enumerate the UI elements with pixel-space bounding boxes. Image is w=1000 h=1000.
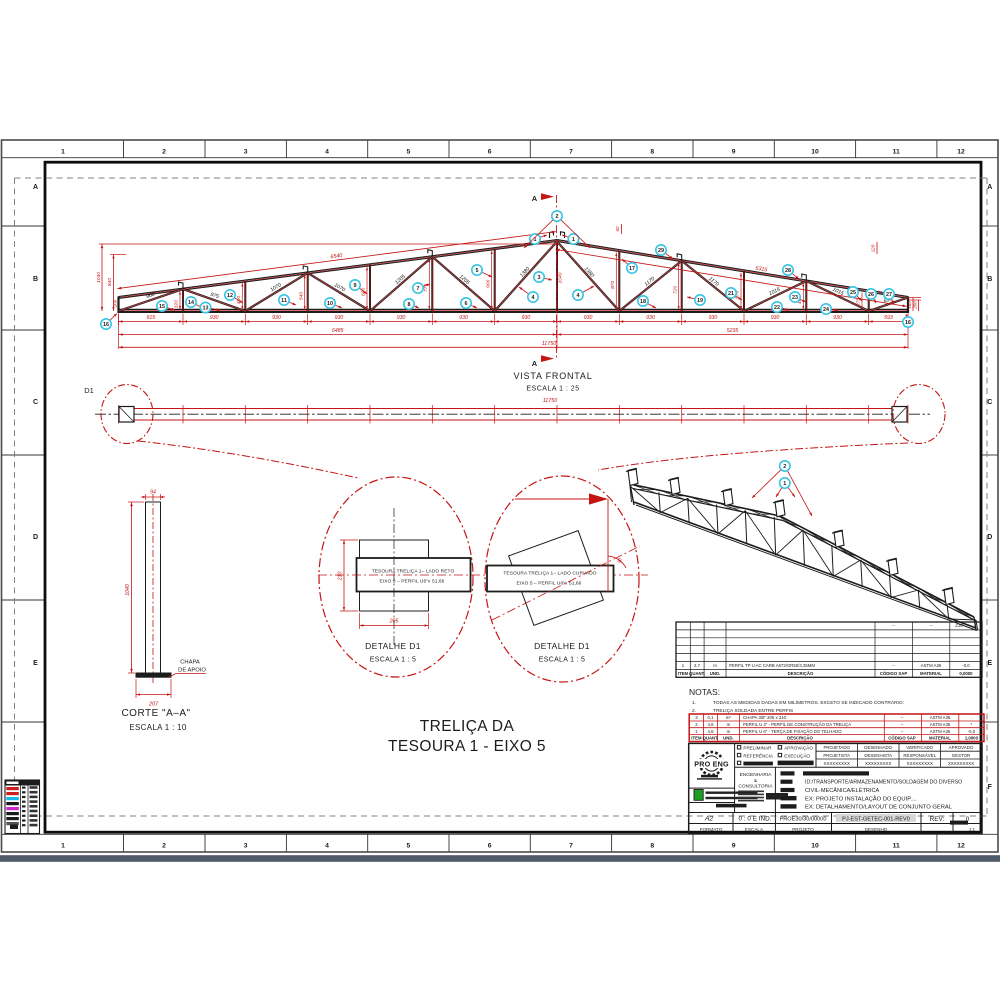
svg-text:24: 24 [823, 307, 829, 313]
svg-text:4,6: 4,6 [708, 722, 715, 727]
svg-text:11: 11 [893, 842, 900, 849]
svg-text:2: 2 [162, 148, 166, 155]
svg-text:TRELIÇA DA: TRELIÇA DA [420, 718, 515, 735]
svg-text:E: E [33, 660, 38, 667]
svg-text:0,0000: 0,0000 [959, 671, 973, 676]
svg-text:165: 165 [907, 301, 912, 309]
svg-text:.: . [971, 715, 972, 720]
svg-text:8: 8 [408, 302, 411, 308]
svg-text:29: 29 [658, 248, 664, 254]
svg-text:QUANT.: QUANT. [703, 736, 719, 741]
svg-text:XXXXXXXXX: XXXXXXXXX [824, 761, 850, 766]
svg-text:B: B [987, 276, 992, 283]
svg-text:DE APOIO: DE APOIO [178, 668, 206, 674]
svg-text:915: 915 [146, 315, 155, 321]
svg-text:17: 17 [629, 266, 635, 272]
svg-text:210: 210 [338, 572, 344, 582]
svg-text:14: 14 [188, 300, 194, 306]
svg-text:11750: 11750 [543, 398, 558, 404]
svg-text:26: 26 [868, 292, 874, 298]
svg-text:4: 4 [577, 293, 580, 299]
svg-text:ESCALA 1 : 5: ESCALA 1 : 5 [370, 657, 416, 664]
svg-text:FORMATO: FORMATO [700, 827, 723, 832]
svg-text:28: 28 [785, 268, 791, 274]
svg-text:930: 930 [833, 315, 842, 321]
svg-text:EXECUÇÃO: EXECUÇÃO [784, 752, 810, 758]
svg-text:m²: m² [726, 715, 732, 720]
svg-text:1: 1 [61, 148, 65, 155]
svg-text:9: 9 [732, 148, 736, 155]
svg-text:TESOURA TRELIÇA 1– LADO RETO: TESOURA TRELIÇA 1– LADO RETO [372, 569, 455, 575]
svg-text:1: 1 [61, 842, 65, 849]
svg-text:22: 22 [774, 305, 780, 311]
svg-text:PERFIL TP U AC CARB A572/GR50/: PERFIL TP U AC CARB A572/GR50/3,35MM [729, 663, 815, 668]
svg-text:CÓDIGO SAP: CÓDIGO SAP [888, 736, 916, 741]
svg-text:ESCALA: ESCALA [745, 827, 764, 832]
svg-text:5: 5 [476, 268, 479, 274]
svg-text:EX: PROJETO INSTALAÇÃO DO EQUI: EX: PROJETO INSTALAÇÃO DO EQUIP.... [805, 795, 917, 802]
svg-text:1: 1 [572, 237, 575, 243]
svg-text:A: A [987, 184, 992, 191]
svg-text:-0,0: -0,0 [968, 729, 976, 734]
svg-text:930: 930 [646, 315, 655, 321]
svg-text:C: C [33, 399, 38, 406]
svg-text:593: 593 [884, 315, 893, 321]
svg-text:QUANT.: QUANT. [689, 671, 705, 676]
svg-text:4: 4 [532, 295, 535, 301]
svg-text:CIVIL-MECÂNICA/ELÉTRICA: CIVIL-MECÂNICA/ELÉTRICA [805, 787, 880, 794]
svg-text:DETALHE D1: DETALHE D1 [365, 641, 421, 651]
svg-text:720: 720 [672, 286, 678, 294]
svg-text:E: E [987, 660, 992, 667]
svg-text:TESOURA 1 - EIXO 5: TESOURA 1 - EIXO 5 [388, 738, 546, 755]
svg-text:10: 10 [811, 148, 819, 155]
svg-text:870: 870 [610, 280, 616, 288]
svg-text:12: 12 [227, 293, 233, 299]
svg-text:11: 11 [893, 148, 900, 155]
svg-text:2: 2 [783, 464, 786, 470]
svg-text:DESENHADO: DESENHADO [864, 745, 892, 750]
svg-text:930: 930 [272, 315, 281, 321]
svg-text:REV:: REV: [930, 816, 945, 823]
svg-text:2.: 2. [692, 708, 696, 714]
svg-text:MATERIAL: MATERIAL [920, 671, 942, 676]
svg-text:UND.: UND. [723, 736, 734, 741]
svg-text:ASTM A36: ASTM A36 [921, 663, 942, 668]
svg-text:B: B [33, 276, 38, 283]
svg-text:RESPONSÁVEL: RESPONSÁVEL [903, 753, 936, 758]
svg-text:1,0000: 1,0000 [965, 736, 979, 741]
svg-text:VISTA FRONTAL: VISTA FRONTAL [513, 371, 592, 381]
svg-text:ID:/TRANSPORTE/ARMAZENAMENTO/S: ID:/TRANSPORTE/ARMAZENAMENTO/SOLDAGEM DO… [805, 780, 962, 786]
svg-text:2: 2 [556, 214, 559, 220]
svg-text:ASTM A36: ASTM A36 [930, 722, 951, 727]
svg-text:m: m [713, 663, 717, 668]
svg-text:930: 930 [584, 315, 593, 321]
svg-text:NOTAS:: NOTAS: [689, 687, 720, 697]
svg-text:5235: 5235 [727, 328, 739, 334]
svg-text:11: 11 [281, 298, 287, 304]
svg-text:9: 9 [732, 842, 736, 849]
svg-text:F: F [988, 784, 993, 791]
svg-text:0 : 0 E IND.: 0 : 0 E IND. [738, 816, 771, 823]
svg-text:PROE30/30/00000: PROE30/30/00000 [780, 817, 827, 823]
svg-text:PJ-EST-GETEC-001-REV0: PJ-EST-GETEC-001-REV0 [842, 817, 910, 823]
svg-text:7: 7 [569, 148, 573, 155]
svg-text:TRELIÇA SOLDADA ENTRE PERFIS: TRELIÇA SOLDADA ENTRE PERFIS [713, 708, 793, 714]
svg-text:200: 200 [913, 301, 918, 310]
svg-text:7: 7 [417, 286, 420, 292]
svg-text:4: 4 [325, 148, 329, 155]
svg-text:8: 8 [650, 842, 654, 849]
svg-text:XXXXXXXXX: XXXXXXXXX [948, 761, 974, 766]
svg-text:--: -- [892, 623, 896, 628]
svg-text:12: 12 [957, 148, 965, 155]
svg-text:23: 23 [792, 295, 798, 301]
svg-text:1.: 1. [692, 700, 696, 706]
svg-text:10: 10 [811, 842, 819, 849]
svg-text:207: 207 [148, 702, 159, 708]
svg-text:8: 8 [650, 148, 654, 155]
svg-text:EIXO 5 – PERFIL U6"x 51,66: EIXO 5 – PERFIL U6"x 51,66 [517, 581, 582, 587]
svg-text:ESCALA 1 : 5: ESCALA 1 : 5 [539, 657, 585, 664]
svg-text:ITEM: ITEM [691, 736, 702, 741]
svg-text:UND.: UND. [710, 671, 721, 676]
svg-text:930: 930 [459, 315, 468, 321]
svg-text:ESCALA 1 : 25: ESCALA 1 : 25 [526, 386, 579, 393]
svg-text:930: 930 [709, 315, 718, 321]
svg-text:930: 930 [771, 315, 780, 321]
svg-text:ESCALA 1 : 10: ESCALA 1 : 10 [129, 723, 187, 732]
svg-text:C: C [987, 399, 992, 406]
svg-text:2,7: 2,7 [694, 663, 701, 668]
svg-text:PERFIL U 4" - PERFIL DE CONSTR: PERFIL U 4" - PERFIL DE CONSTRUÇÃO DA TR… [743, 722, 851, 727]
svg-text:930: 930 [335, 315, 344, 321]
svg-text:19: 19 [697, 298, 703, 304]
svg-text:12: 12 [957, 842, 965, 849]
svg-text:27: 27 [886, 292, 892, 298]
svg-text:3: 3 [538, 275, 541, 281]
svg-text:4: 4 [325, 842, 329, 849]
svg-text:m: m [727, 729, 731, 734]
svg-text:CHAPA: CHAPA [180, 660, 200, 666]
svg-text:CONSULTORIA: CONSULTORIA [738, 784, 773, 790]
svg-text:PROJETISTA: PROJETISTA [823, 753, 850, 758]
svg-text:MATERIAL: MATERIAL [929, 736, 951, 741]
svg-text:6: 6 [488, 148, 492, 155]
svg-text:25: 25 [850, 290, 856, 296]
svg-text:13: 13 [203, 305, 209, 311]
svg-text:210: 210 [954, 623, 963, 628]
svg-text:4,6: 4,6 [708, 729, 715, 734]
svg-text:D: D [33, 534, 38, 541]
svg-text:DESENHO: DESENHO [865, 827, 888, 832]
svg-text:320: 320 [174, 300, 180, 308]
svg-text:PRELIMINAR: PRELIMINAR [743, 746, 772, 751]
svg-text:5: 5 [407, 148, 411, 155]
svg-text:A: A [532, 194, 538, 203]
svg-text:1: 1 [783, 481, 786, 487]
svg-text:A: A [532, 359, 538, 368]
svg-text:APROVAÇÃO: APROVAÇÃO [784, 745, 813, 751]
svg-text:200: 200 [112, 299, 117, 308]
svg-text:1040: 1040 [125, 584, 131, 596]
svg-text:ASTM A36: ASTM A36 [930, 729, 951, 734]
svg-text:D: D [987, 534, 992, 541]
svg-text:m: m [727, 722, 731, 727]
svg-text:9: 9 [354, 283, 357, 289]
svg-text:6: 6 [488, 842, 492, 849]
svg-text:6485: 6485 [332, 328, 344, 334]
svg-text:930: 930 [522, 315, 531, 321]
svg-text:18: 18 [640, 299, 646, 305]
svg-text:1:1: 1:1 [969, 827, 976, 832]
svg-text:DETALHE D1: DETALHE D1 [534, 641, 590, 651]
svg-text:0,1: 0,1 [708, 715, 715, 720]
svg-text:6: 6 [465, 301, 468, 307]
svg-text:EX: DETALHAMENTO/LAYOUT DE CON: EX: DETALHAMENTO/LAYOUT DE CONJUNTO GERA… [805, 805, 953, 811]
svg-text:ENGENHARIA: ENGENHARIA [740, 772, 773, 778]
svg-text:APROVADO: APROVADO [949, 745, 974, 750]
svg-text:900: 900 [485, 279, 491, 287]
svg-text:ITEM: ITEM [678, 671, 689, 676]
svg-text:XXXXXXXXX: XXXXXXXXX [865, 761, 891, 766]
svg-text:840: 840 [107, 278, 113, 286]
svg-text:3: 3 [244, 842, 248, 849]
svg-text:PRO ENG: PRO ENG [694, 760, 729, 769]
svg-text:120: 120 [871, 244, 876, 252]
svg-text:TESOURA TRELIÇA 1– LADO CURVAD: TESOURA TRELIÇA 1– LADO CURVADO [503, 571, 596, 577]
svg-text:11750: 11750 [542, 341, 557, 347]
svg-text:DESENHISTA: DESENHISTA [864, 753, 892, 758]
svg-text:15: 15 [159, 304, 165, 310]
svg-text:16: 16 [103, 322, 109, 328]
svg-text:XXXXXXXXX: XXXXXXXXX [907, 761, 933, 766]
svg-text:TODAS AS MEDIDAS DADAS EM MILÍ: TODAS AS MEDIDAS DADAS EM MILÍMETROS. EX… [713, 699, 904, 706]
svg-text:EIXO 5 – PERFIL U6"x 51,66: EIXO 5 – PERFIL U6"x 51,66 [380, 579, 445, 585]
svg-text:A2: A2 [704, 816, 714, 823]
svg-text:540: 540 [298, 292, 304, 300]
svg-text:205: 205 [389, 619, 399, 625]
svg-text:PROJETADO: PROJETADO [823, 745, 850, 750]
svg-text:PERFIL U 6" - TERÇA DE FIXAÇÃO: PERFIL U 6" - TERÇA DE FIXAÇÃO DO TELHAD… [743, 729, 842, 734]
svg-text:PROJETO: PROJETO [792, 827, 814, 832]
svg-text:94: 94 [150, 490, 156, 496]
svg-text:DESCRIÇÃO: DESCRIÇÃO [788, 671, 814, 676]
svg-text:930: 930 [210, 315, 219, 321]
svg-text:930: 930 [397, 315, 406, 321]
svg-text:400: 400 [236, 296, 242, 304]
svg-text:CÓDIGO SAP: CÓDIGO SAP [880, 671, 908, 676]
svg-text:ASTM A36: ASTM A36 [930, 715, 951, 720]
svg-text:60: 60 [615, 226, 620, 232]
svg-text:D1: D1 [84, 386, 94, 395]
svg-text:GESTOR: GESTOR [952, 753, 970, 758]
svg-text:3: 3 [244, 148, 248, 155]
svg-text:21: 21 [728, 291, 734, 297]
svg-text:1040: 1040 [558, 272, 564, 283]
svg-text:2: 2 [162, 842, 166, 849]
svg-text:A: A [33, 184, 38, 191]
svg-text:10: 10 [327, 301, 333, 307]
svg-text:7: 7 [569, 842, 573, 849]
svg-text:1040: 1040 [96, 272, 102, 283]
svg-text:5: 5 [407, 842, 411, 849]
svg-text:CORTE "A–A": CORTE "A–A" [121, 708, 190, 719]
svg-text:DESCRIÇÃO: DESCRIÇÃO [787, 736, 813, 741]
svg-text:VERIFICADO: VERIFICADO [906, 745, 933, 750]
svg-text:REFERÊNCIA: REFERÊNCIA [743, 751, 774, 758]
svg-text:16: 16 [905, 320, 911, 326]
svg-text:CHAPA 3/8" 205 x 210: CHAPA 3/8" 205 x 210 [743, 715, 787, 720]
svg-text:-0,0: -0,0 [962, 663, 970, 668]
svg-text:--: -- [929, 623, 933, 628]
